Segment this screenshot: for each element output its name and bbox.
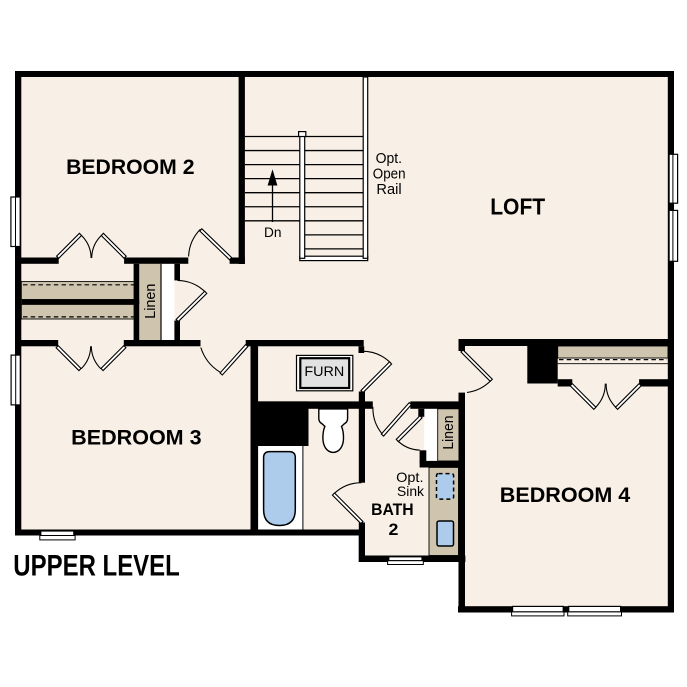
svg-text:LOFT: LOFT bbox=[490, 194, 545, 220]
svg-text:2: 2 bbox=[389, 521, 399, 539]
svg-text:BEDROOM 4: BEDROOM 4 bbox=[500, 483, 631, 507]
svg-text:BEDROOM 2: BEDROOM 2 bbox=[66, 155, 194, 179]
svg-text:FURN: FURN bbox=[304, 364, 344, 379]
svg-text:BATH: BATH bbox=[371, 501, 414, 519]
svg-text:BEDROOM 3: BEDROOM 3 bbox=[71, 426, 201, 450]
svg-text:UPPER LEVEL: UPPER LEVEL bbox=[13, 549, 180, 582]
svg-text:Linen: Linen bbox=[142, 284, 159, 319]
svg-text:Dn: Dn bbox=[264, 225, 282, 241]
svg-text:Linen: Linen bbox=[440, 416, 457, 450]
svg-text:Rail: Rail bbox=[376, 181, 401, 198]
svg-text:Open: Open bbox=[373, 166, 406, 183]
svg-text:Opt.: Opt. bbox=[376, 150, 402, 167]
svg-text:Sink: Sink bbox=[397, 483, 425, 499]
